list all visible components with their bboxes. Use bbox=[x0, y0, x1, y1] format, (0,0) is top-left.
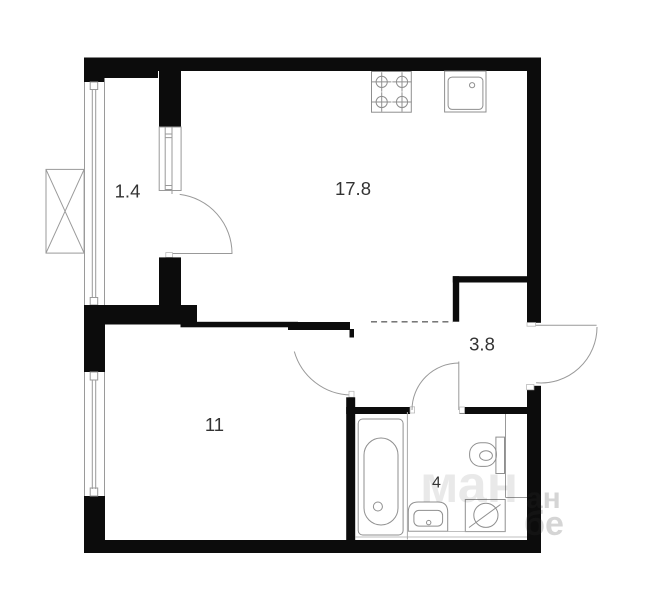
svg-text:ан: ан bbox=[526, 482, 561, 515]
svg-text:ман: ман bbox=[420, 456, 518, 514]
svg-text:17.8: 17.8 bbox=[335, 178, 371, 199]
svg-text:3.8: 3.8 bbox=[469, 334, 495, 355]
svg-text:1.4: 1.4 bbox=[115, 181, 141, 202]
svg-text:11: 11 bbox=[205, 414, 224, 435]
